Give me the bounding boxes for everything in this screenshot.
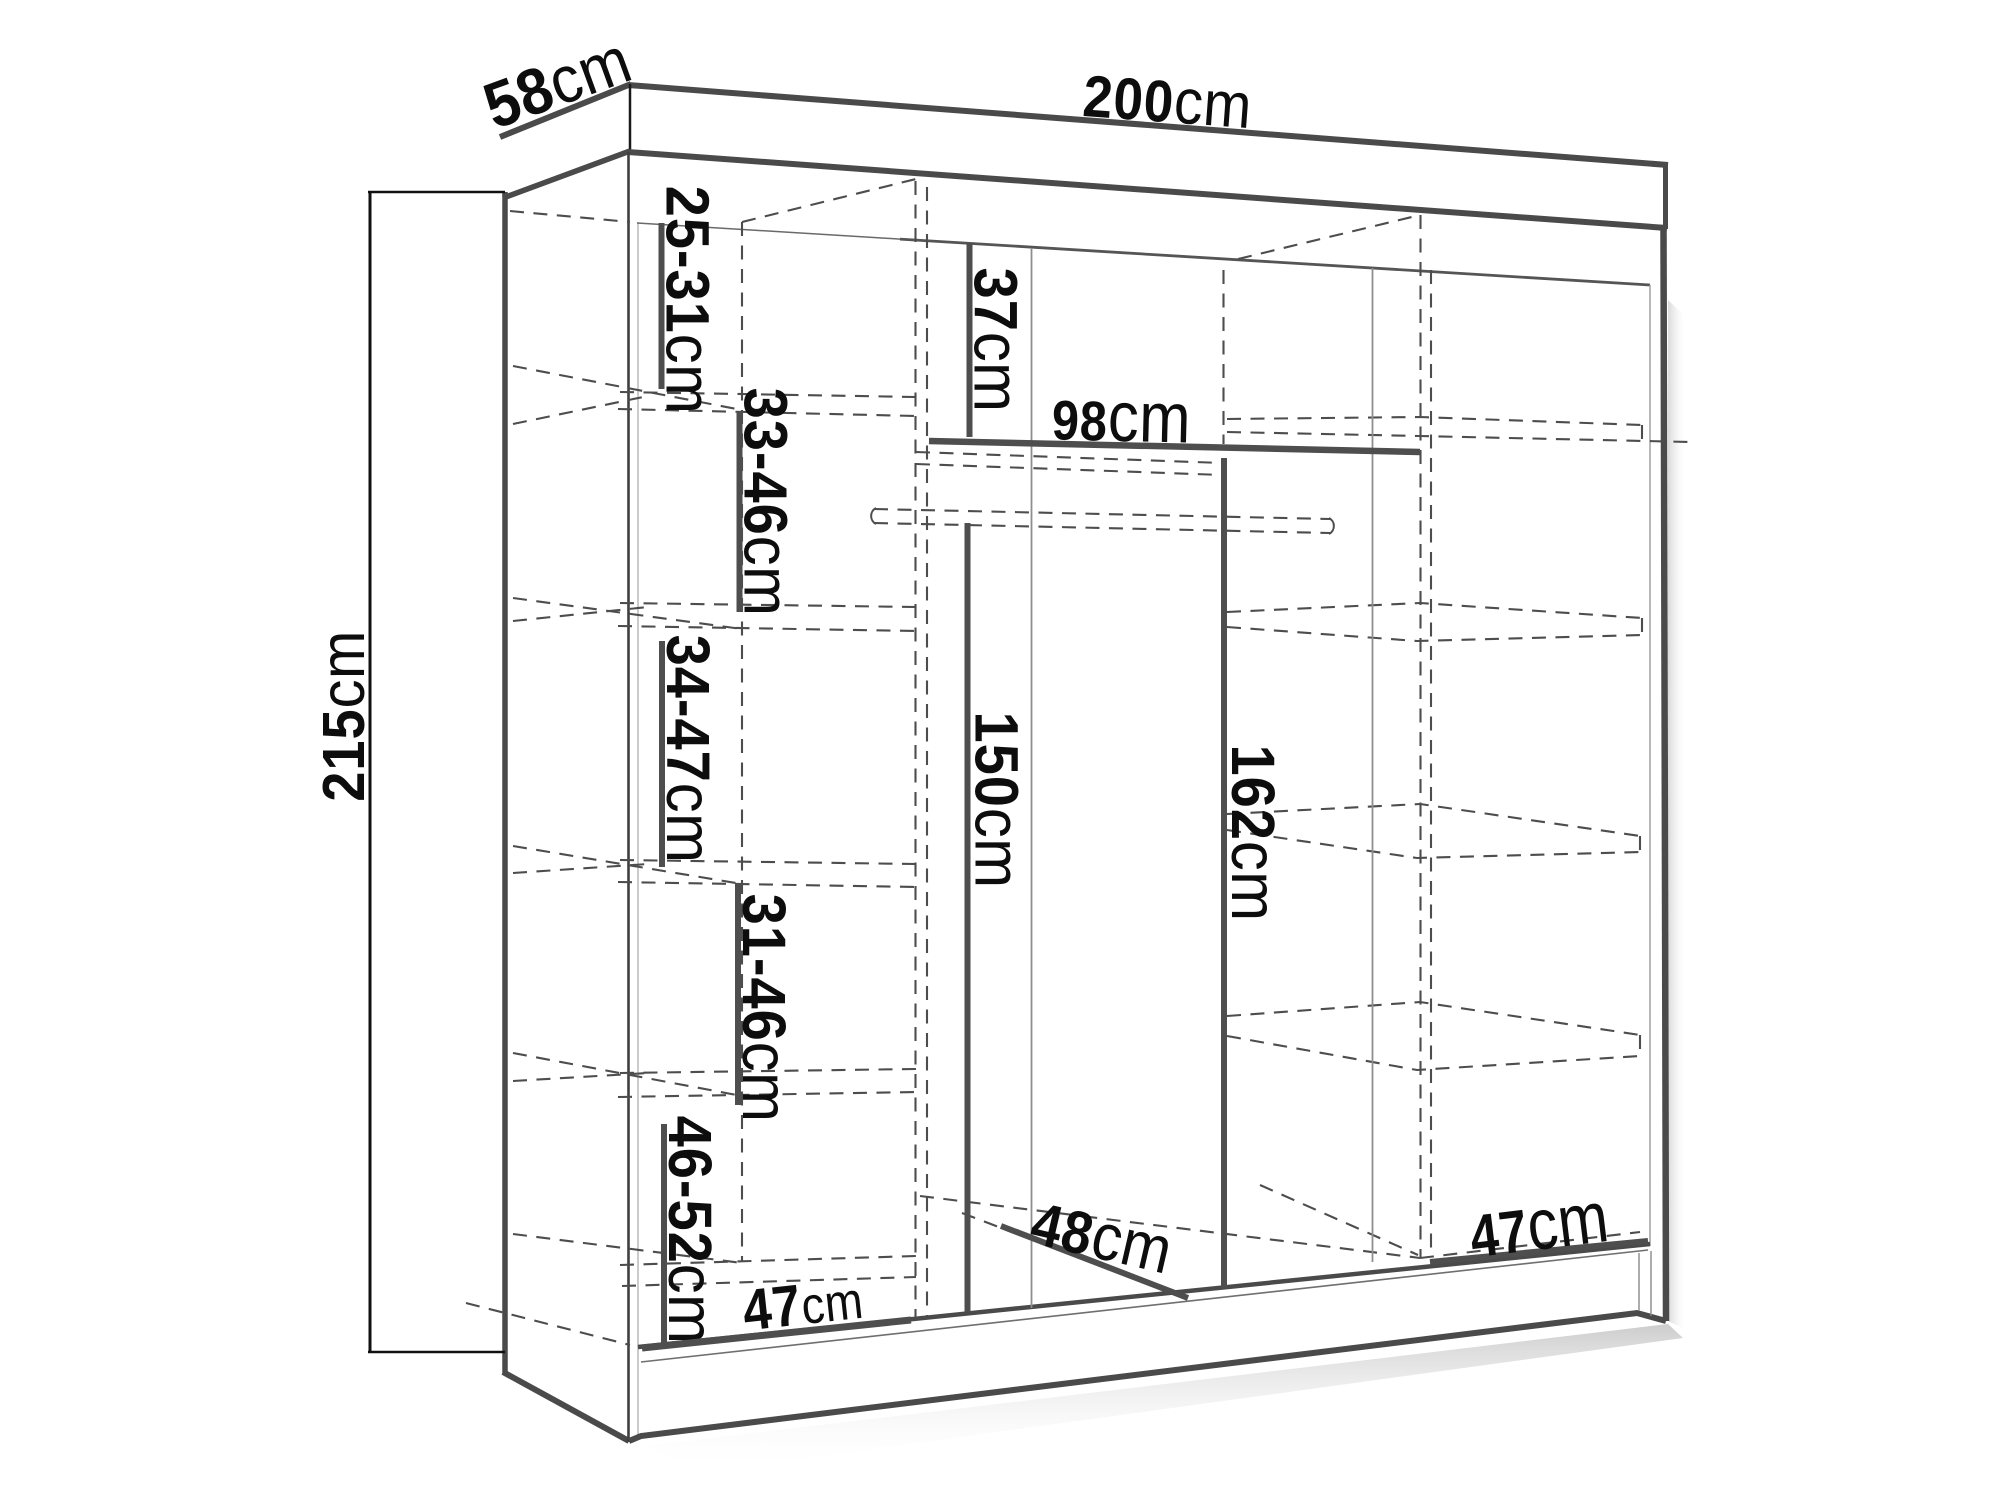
svg-text:31-46cm: 31-46cm (728, 894, 801, 1123)
svg-text:200cm: 200cm (1081, 58, 1255, 142)
svg-text:37cm: 37cm (960, 268, 1033, 413)
svg-text:46-52cm: 46-52cm (654, 1116, 727, 1345)
svg-text:150cm: 150cm (961, 711, 1034, 888)
svg-text:162cm: 162cm (1217, 744, 1290, 921)
svg-text:34-47cm: 34-47cm (652, 635, 725, 864)
svg-text:25-31cm: 25-31cm (652, 186, 725, 415)
svg-text:215cm: 215cm (307, 630, 378, 801)
svg-text:98cm: 98cm (1051, 376, 1192, 458)
svg-text:33-46cm: 33-46cm (730, 388, 803, 617)
